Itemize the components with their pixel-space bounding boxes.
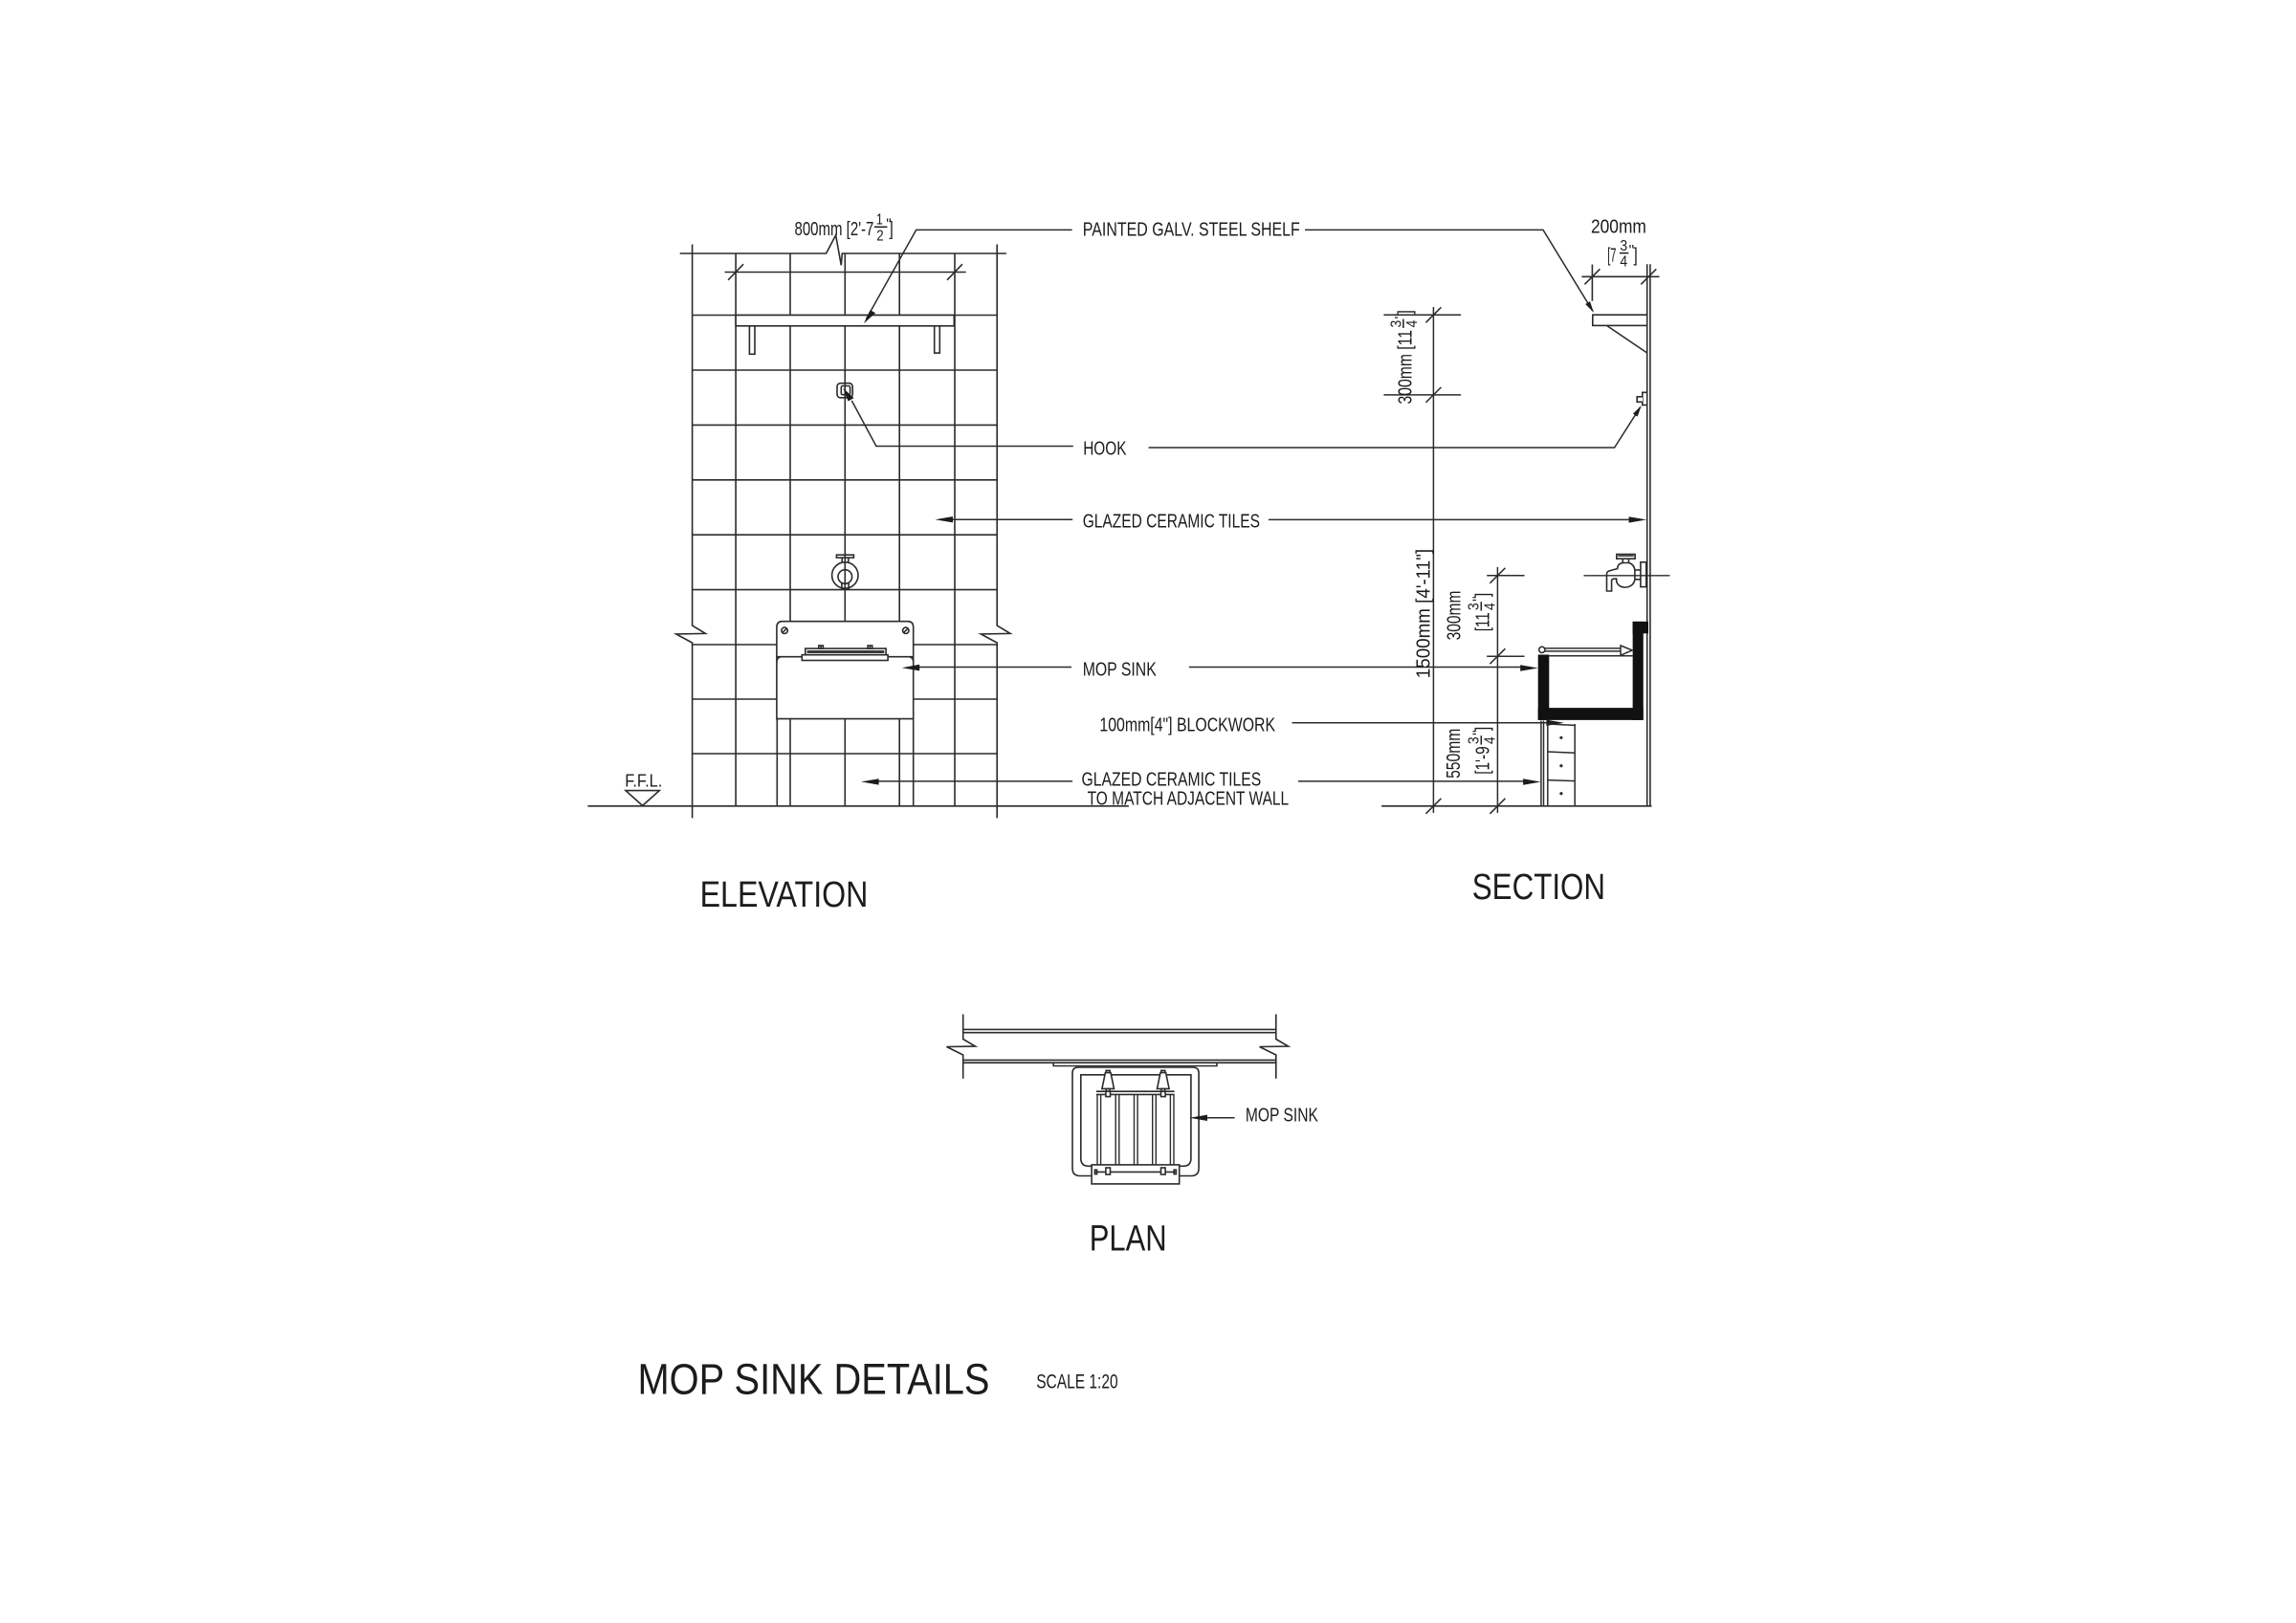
svg-text:550mm: 550mm xyxy=(1444,729,1465,779)
svg-text:3: 3 xyxy=(1467,736,1483,744)
svg-text:SCALE 1:20: SCALE 1:20 xyxy=(1036,1371,1117,1393)
svg-text:4: 4 xyxy=(1620,254,1627,271)
svg-text:MOP SINK DETAILS: MOP SINK DETAILS xyxy=(638,1355,990,1404)
svg-text:]: ] xyxy=(1473,727,1494,731)
svg-text:300mm [11: 300mm [11 xyxy=(1395,330,1416,405)
svg-text:800mm [2'-7: 800mm [2'-7 xyxy=(795,219,874,240)
svg-text:100mm[4"] BLOCKWORK: 100mm[4"] BLOCKWORK xyxy=(1099,714,1275,735)
svg-text:PLAN: PLAN xyxy=(1090,1219,1167,1260)
svg-text:4: 4 xyxy=(1482,603,1498,610)
svg-text:1: 1 xyxy=(876,212,883,229)
svg-text:300mm: 300mm xyxy=(1444,591,1465,641)
svg-text:4: 4 xyxy=(1482,736,1498,744)
svg-text:]: ] xyxy=(1395,310,1416,314)
svg-text:[11: [11 xyxy=(1473,612,1494,631)
svg-text:ELEVATION: ELEVATION xyxy=(700,875,869,915)
svg-text:GLAZED CERAMIC TILES: GLAZED CERAMIC TILES xyxy=(1082,769,1262,790)
svg-text:3: 3 xyxy=(1467,603,1483,610)
svg-text:[7: [7 xyxy=(1607,245,1616,266)
svg-text:2: 2 xyxy=(876,228,883,244)
svg-text:[1'-9: [1'-9 xyxy=(1473,746,1494,775)
svg-text:PAINTED GALV. STEEL SHELF: PAINTED GALV. STEEL SHELF xyxy=(1083,219,1300,240)
svg-text:]: ] xyxy=(1473,593,1494,597)
svg-text:4: 4 xyxy=(1404,319,1421,327)
svg-text:200mm: 200mm xyxy=(1591,217,1646,238)
svg-text:SECTION: SECTION xyxy=(1472,867,1605,908)
svg-text:]: ] xyxy=(1633,245,1637,266)
svg-text:]: ] xyxy=(889,219,893,240)
svg-text:TO MATCH ADJACENT WALL: TO MATCH ADJACENT WALL xyxy=(1088,789,1290,810)
svg-text:F.F.L.: F.F.L. xyxy=(625,771,662,791)
svg-text:HOOK: HOOK xyxy=(1083,438,1127,459)
svg-text:MOP SINK: MOP SINK xyxy=(1083,659,1158,680)
svg-text:3: 3 xyxy=(1620,238,1627,254)
svg-text:1500mm [4'-11"]: 1500mm [4'-11"] xyxy=(1414,549,1435,678)
svg-text:3: 3 xyxy=(1388,320,1404,328)
svg-text:MOP SINK: MOP SINK xyxy=(1246,1106,1319,1127)
svg-text:GLAZED CERAMIC TILES: GLAZED CERAMIC TILES xyxy=(1083,512,1260,533)
